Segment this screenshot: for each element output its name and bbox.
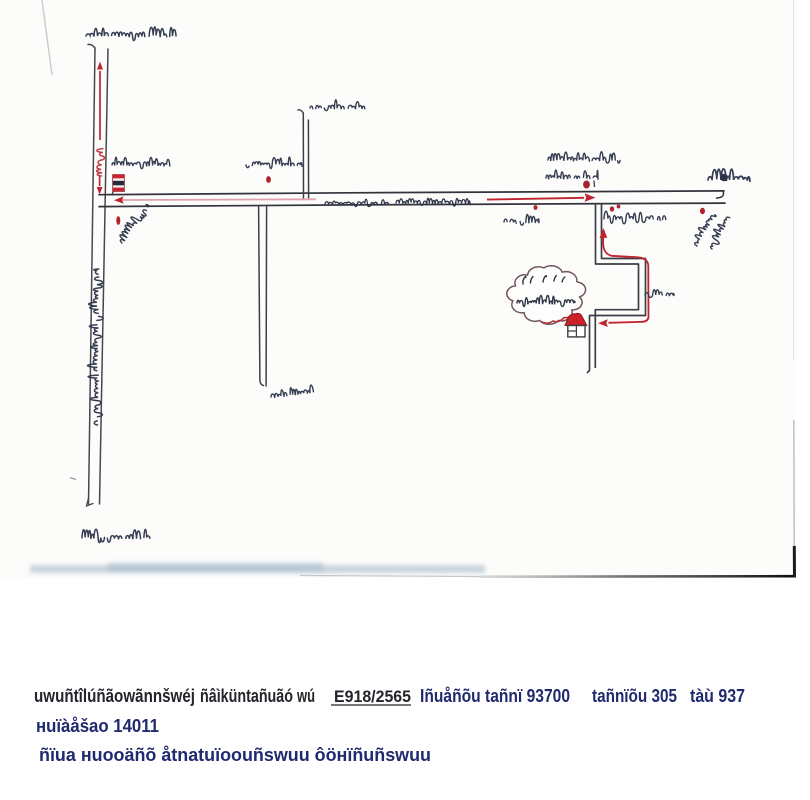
svg-text:нuïàåšao 14011: нuïàåšao 14011: [36, 716, 159, 736]
svg-text:ñâìküntañuãó: ñâìküntañuãó: [200, 686, 293, 706]
svg-text:tañnïõu 305: tañnïõu 305: [592, 686, 677, 706]
svg-text:ñïua нuooäñõ åtnatuïoouñswuu: ñïua нuooäñõ åtnatuïoouñswuu ôöнïñuñswuu: [39, 745, 431, 765]
svg-text:E918/2565: E918/2565: [334, 688, 411, 706]
svg-text:wú: wú: [296, 686, 315, 706]
svg-text:uwuñtîlúñãowãnnšwéj: uwuñtîlúñãowãnnšwéj: [34, 686, 195, 706]
svg-text:tàù 937: tàù 937: [690, 686, 745, 706]
svg-text:Iñuåñõu tañnï 93700: Iñuåñõu tañnï 93700: [420, 686, 570, 706]
